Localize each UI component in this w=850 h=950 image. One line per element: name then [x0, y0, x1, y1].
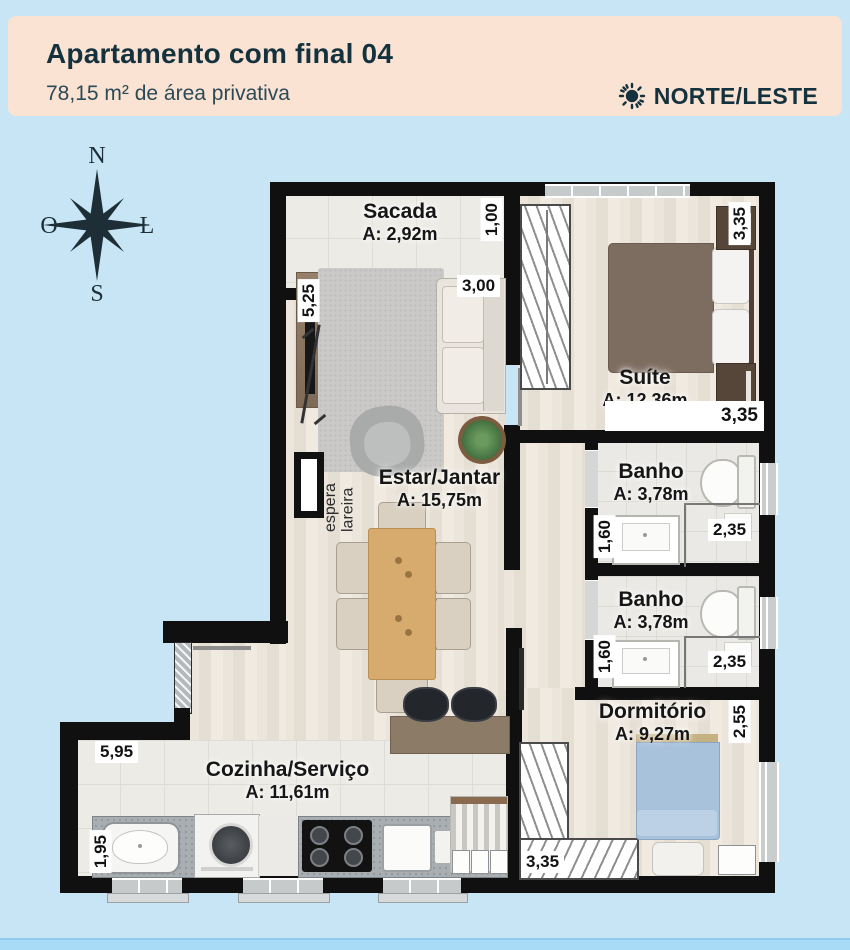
door-entry	[193, 646, 251, 650]
window-dormitorio	[759, 762, 779, 862]
shelf-box-2	[471, 850, 489, 874]
toilet-tank-banho1	[737, 455, 756, 509]
wall-suite-left-upper	[504, 300, 520, 365]
fireplace-note-line1: espera	[322, 483, 339, 532]
door-leaf-dormitorio	[519, 648, 524, 710]
stove	[302, 820, 372, 872]
shelf-box-1	[452, 850, 470, 874]
wall-kitchen-top	[60, 722, 190, 740]
dim-banho1-bottom: 2,35	[708, 519, 751, 541]
room-name-dormitorio: Dormitório	[570, 700, 735, 724]
window-banho2	[760, 597, 778, 649]
dim-cozinha-left: 1,95	[90, 830, 112, 873]
room-label-sacada: Sacada A: 2,92m	[325, 200, 475, 245]
vanity-basin-banho2	[622, 648, 670, 674]
room-area-banho2: A: 3,78m	[592, 612, 710, 633]
table-decor-1	[395, 557, 402, 564]
dim-dorm-right: 2,55	[729, 700, 751, 743]
dim-banho1-left: 1,60	[594, 515, 616, 558]
dim-estar-width: 3,00	[457, 275, 500, 297]
sofa	[436, 278, 506, 414]
window-sill-2	[238, 893, 330, 903]
room-label-banho1: Banho A: 3,78m	[592, 460, 710, 505]
shelf-box-3	[490, 850, 508, 874]
window-banho1	[760, 463, 778, 515]
compass-o: O	[40, 213, 57, 239]
room-label-cozinha: Cozinha/Serviço A: 11,61m	[190, 758, 385, 803]
sun-icon	[618, 82, 646, 110]
wall-sacada-right	[504, 182, 520, 300]
wardrobe-rail	[546, 210, 548, 385]
compass-n: N	[88, 145, 105, 169]
room-name-estar: Estar/Jantar	[352, 466, 527, 490]
fireplace-niche	[294, 452, 324, 518]
window-sill-1	[107, 893, 189, 903]
dim-suite-side: 3,35	[729, 202, 751, 245]
vanity-banho1	[612, 515, 680, 565]
bed-dorm-footboard	[652, 842, 704, 876]
nightstand-bottom-detail	[746, 371, 751, 401]
sofa-cushion-2	[442, 347, 484, 404]
room-name-sacada: Sacada	[325, 200, 475, 224]
wall-banho1-left-a	[585, 443, 598, 450]
room-area-cozinha: A: 11,61m	[190, 782, 385, 803]
room-area-estar: A: 15,75m	[352, 490, 527, 511]
wall-suite-bottom	[504, 430, 775, 443]
window-suite-top	[545, 184, 690, 198]
washing-machine	[194, 814, 260, 878]
washing-machine-door	[209, 823, 253, 867]
dim-banho2-left: 1,60	[594, 635, 616, 678]
sofa-backrest	[483, 279, 504, 411]
vanity-banho2	[612, 640, 680, 688]
stove-burner-1	[310, 826, 329, 845]
bar-stool-2	[451, 687, 497, 722]
bed-dormitorio	[636, 734, 718, 876]
wall-kitchen-left	[60, 722, 78, 893]
table-decor-3	[395, 615, 402, 622]
wardrobe-suite	[520, 204, 571, 390]
vanity-drain-banho2	[643, 657, 647, 661]
vanity-drain-banho1	[643, 533, 647, 537]
dim-banho2-bottom: 2,35	[708, 651, 751, 673]
room-area-banho1: A: 3,78m	[592, 484, 710, 505]
laundry-sink	[102, 822, 180, 874]
dining-chair-right-1	[432, 542, 471, 594]
window-sill-3	[378, 893, 468, 903]
compass-s: S	[90, 281, 103, 305]
page-title: Apartamento com final 04	[46, 38, 393, 70]
kitchen-sink-basin	[382, 824, 432, 872]
dim-estar-height: 5,25	[298, 279, 320, 322]
dim-suite-bottom: 3,35	[605, 401, 764, 431]
dim-dorm-bottom: 3,35	[521, 851, 564, 873]
dim-sacada-depth: 1,00	[481, 198, 503, 241]
wall-dormitorio-top	[575, 687, 775, 700]
bed-suite-blanket	[608, 243, 714, 373]
washing-machine-panel	[201, 867, 253, 871]
bar-stool-1	[403, 687, 449, 722]
table-decor-2	[405, 571, 412, 578]
stove-burner-3	[310, 848, 329, 867]
armchair-seat	[362, 420, 412, 469]
orientation-label: NORTE/LESTE	[654, 83, 818, 110]
wall-entry-hatched	[174, 642, 192, 714]
room-name-banho1: Banho	[592, 460, 710, 484]
dorm-corner-box	[718, 845, 756, 875]
counter-white	[258, 816, 302, 876]
page-subtitle: 78,15 m² de área privativa	[46, 82, 290, 106]
room-area-dormitorio: A: 9,27m	[570, 724, 735, 745]
room-name-banho2: Banho	[592, 588, 710, 612]
bed-suite-pillow-2	[712, 309, 750, 366]
wall-entry-top	[163, 621, 288, 643]
dining-table	[368, 528, 436, 680]
bed-suite	[608, 243, 754, 371]
room-area-sacada: A: 2,92m	[325, 224, 475, 245]
orientation-badge: NORTE/LESTE	[618, 82, 818, 110]
toilet-tank-banho2	[737, 586, 756, 640]
stove-burner-4	[344, 848, 363, 867]
bar-counter	[390, 716, 510, 754]
room-label-estar: Estar/Jantar A: 15,75m	[352, 466, 527, 511]
laundry-sink-drain	[138, 844, 142, 848]
footer-strip	[0, 938, 850, 950]
wall-top	[270, 182, 775, 196]
room-label-dormitorio: Dormitório A: 9,27m	[570, 700, 735, 745]
stove-burner-2	[344, 826, 363, 845]
bed-suite-headboard	[749, 243, 754, 371]
plant-leaves	[462, 420, 502, 460]
dim-cozinha-top: 5,95	[95, 741, 138, 763]
room-name-cozinha: Cozinha/Serviço	[190, 758, 385, 782]
floorplan-page: Apartamento com final 04 78,15 m² de áre…	[0, 0, 850, 950]
room-name-suite: Suíte	[565, 366, 725, 390]
drying-rack-bar	[451, 797, 507, 804]
bed-suite-pillow-1	[712, 247, 750, 304]
vanity-basin-banho1	[622, 523, 670, 551]
table-decor-4	[405, 629, 412, 636]
room-label-banho2: Banho A: 3,78m	[592, 588, 710, 633]
floor-entry	[189, 642, 286, 742]
wall-left	[270, 182, 286, 644]
compass-l: L	[140, 213, 155, 239]
plant	[458, 416, 506, 464]
compass-rose: N S O L	[35, 145, 185, 305]
bed-dorm-sheet-fold	[637, 810, 717, 836]
dining-chair-right-2	[432, 598, 471, 650]
header-banner: Apartamento com final 04 78,15 m² de áre…	[8, 16, 842, 116]
